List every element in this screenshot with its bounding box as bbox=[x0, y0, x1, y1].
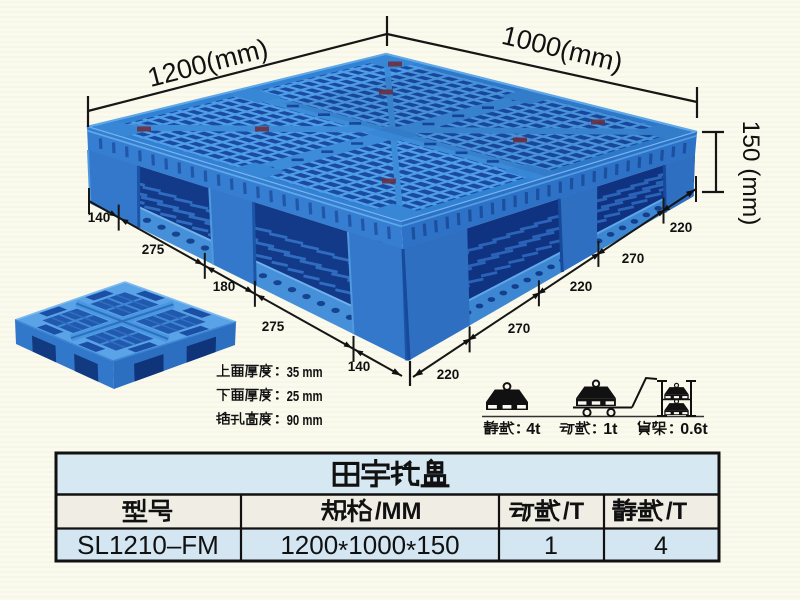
svg-text:/T: /T bbox=[666, 498, 688, 525]
svg-text:220: 220 bbox=[437, 367, 460, 382]
svg-text:1t: 1t bbox=[603, 421, 618, 438]
svg-text:270: 270 bbox=[622, 251, 645, 266]
svg-text:220: 220 bbox=[570, 279, 593, 294]
svg-text:180: 180 bbox=[213, 279, 236, 294]
svg-text:35 mm: 35 mm bbox=[287, 364, 323, 381]
svg-text:4t: 4t bbox=[526, 421, 541, 438]
svg-text:275: 275 bbox=[262, 319, 285, 334]
svg-text:90 mm: 90 mm bbox=[287, 412, 323, 429]
svg-text:275: 275 bbox=[142, 242, 165, 257]
svg-text:140: 140 bbox=[348, 359, 371, 374]
svg-text:4: 4 bbox=[654, 532, 668, 560]
svg-text:1: 1 bbox=[544, 532, 558, 560]
svg-text:220: 220 bbox=[670, 220, 693, 235]
svg-text:0.6t: 0.6t bbox=[680, 421, 708, 438]
svg-text:25 mm: 25 mm bbox=[287, 388, 323, 405]
svg-text:150 (mm): 150 (mm) bbox=[737, 121, 764, 226]
svg-text:270: 270 bbox=[508, 321, 531, 336]
svg-text:/T: /T bbox=[563, 498, 585, 525]
svg-text:140: 140 bbox=[88, 210, 111, 225]
svg-text:SL1210–FM: SL1210–FM bbox=[77, 530, 219, 560]
svg-text:/MM: /MM bbox=[375, 498, 422, 525]
